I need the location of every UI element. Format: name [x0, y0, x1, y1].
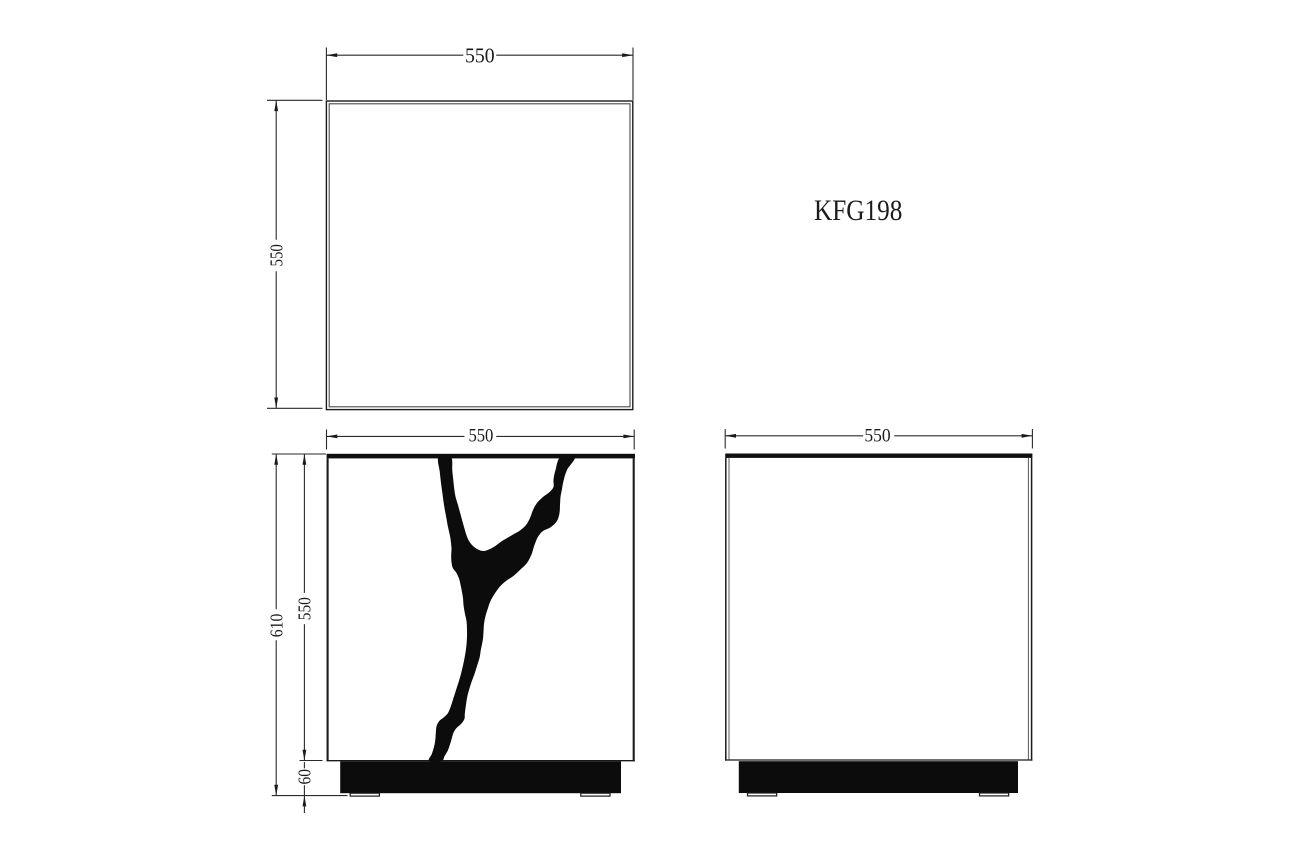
svg-text:610: 610 [267, 613, 287, 637]
svg-text:550: 550 [267, 244, 287, 267]
svg-text:KFG198: KFG198 [814, 195, 902, 227]
svg-text:550: 550 [465, 43, 495, 67]
svg-text:550: 550 [864, 426, 890, 446]
svg-text:550: 550 [468, 427, 493, 447]
svg-text:60: 60 [295, 769, 315, 785]
svg-text:550: 550 [295, 597, 315, 620]
